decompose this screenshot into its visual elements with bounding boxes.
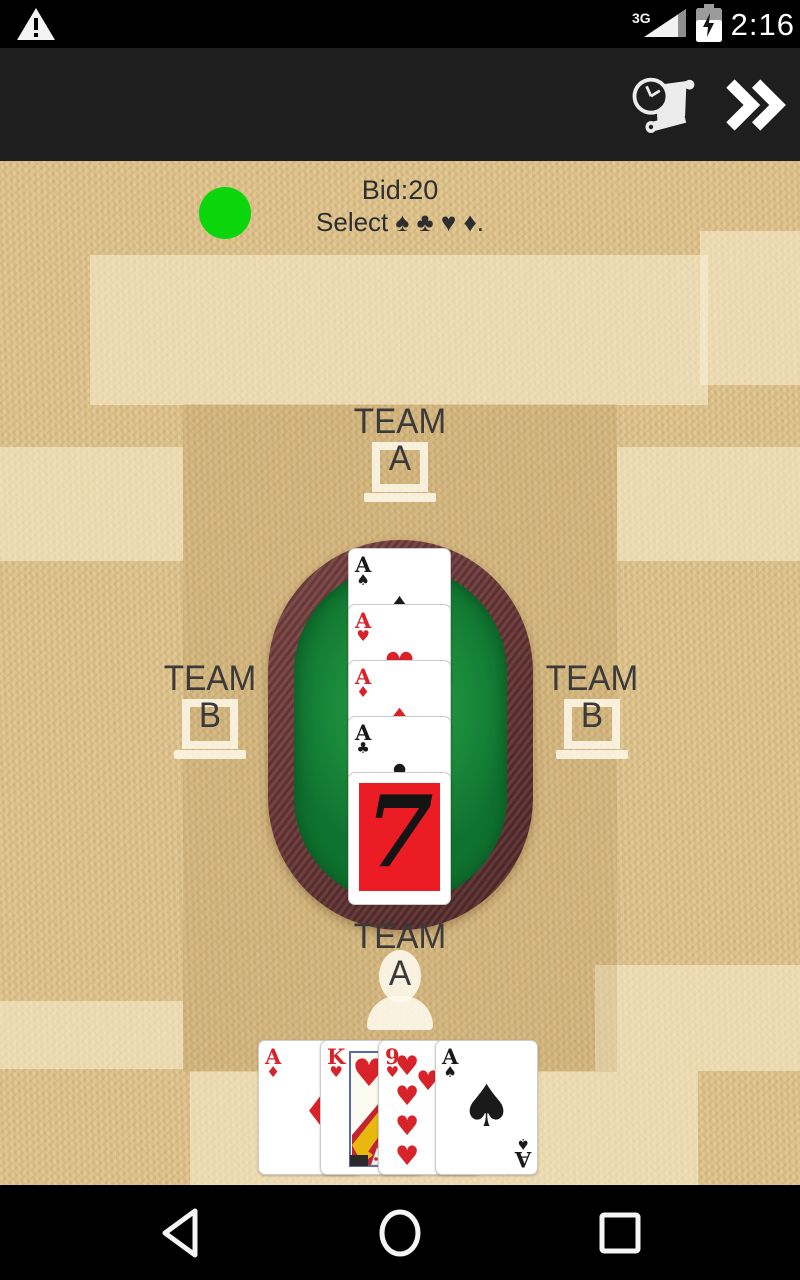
card-center-pip: ♠ — [436, 1077, 537, 1135]
battery-charging-icon — [696, 4, 722, 42]
skip-forward-button[interactable] — [708, 57, 800, 153]
card-suit: ♥ — [386, 1065, 399, 1080]
card-pip: ♥ — [395, 1113, 419, 1140]
card-suit: ♠ — [356, 573, 369, 588]
background-patch — [0, 1001, 183, 1069]
background-patch — [700, 231, 800, 385]
card-suit: ♥ — [356, 629, 369, 644]
hand-card-ace-spades[interactable]: A♠ ♠ A♠ — [435, 1040, 538, 1175]
back-icon — [160, 1207, 200, 1259]
seat-team-label: TEAM — [521, 660, 664, 697]
android-nav-bar — [0, 1185, 800, 1280]
recents-button[interactable] — [575, 1185, 665, 1280]
seat-team-label: TEAM — [329, 403, 472, 440]
scroll-clock-icon — [626, 72, 698, 138]
seat-right-team-b: TEAM B — [517, 660, 667, 734]
card-suit: ♠ — [516, 1136, 529, 1151]
clock: 2:16 — [731, 9, 795, 40]
seat-team-label: TEAM — [139, 660, 282, 697]
card-pip: ♥ — [395, 1143, 419, 1170]
warning-icon — [16, 5, 56, 43]
card-suit: ♠ — [443, 1065, 456, 1080]
background-patch — [617, 447, 800, 561]
trump-rank: 7 — [365, 784, 433, 882]
seat-top-team-a: TEAM A — [325, 403, 475, 477]
bid-label: Bid:20 — [0, 174, 800, 206]
double-chevron-icon — [719, 75, 789, 135]
card-suit: ♦ — [356, 685, 369, 700]
app-bar — [0, 48, 800, 161]
card-suit: ♦ — [266, 1065, 279, 1080]
score-history-button[interactable] — [616, 57, 708, 153]
home-icon — [378, 1208, 422, 1258]
seat-team-letter: A — [329, 955, 472, 992]
trump-card-face: 7 — [359, 783, 440, 891]
seat-team-letter: B — [521, 697, 664, 734]
trump-card-seven: 7 — [348, 772, 451, 905]
status-bar: 3G 2:16 — [0, 0, 800, 48]
back-button[interactable] — [135, 1185, 225, 1280]
seat-team-letter: B — [139, 697, 282, 734]
recents-icon — [598, 1211, 642, 1255]
seat-team-letter: A — [329, 440, 472, 477]
trump-select-prompt: Select ♠ ♣ ♥ ♦. — [0, 207, 800, 238]
card-suit: ♣ — [356, 741, 369, 756]
signal-strength-icon — [644, 9, 686, 37]
seat-left-team-b: TEAM B — [135, 660, 285, 734]
background-patch — [0, 447, 183, 561]
game-area: Bid:20 Select ♠ ♣ ♥ ♦. TEAM A TEAM B TEA… — [0, 161, 800, 1185]
seat-bottom-team-a: TEAM A — [325, 918, 475, 992]
background-patch — [90, 255, 708, 405]
seat-team-label: TEAM — [329, 918, 472, 955]
home-button[interactable] — [355, 1185, 445, 1280]
card-suit: ♥ — [329, 1065, 342, 1080]
background-patch — [595, 965, 800, 1071]
